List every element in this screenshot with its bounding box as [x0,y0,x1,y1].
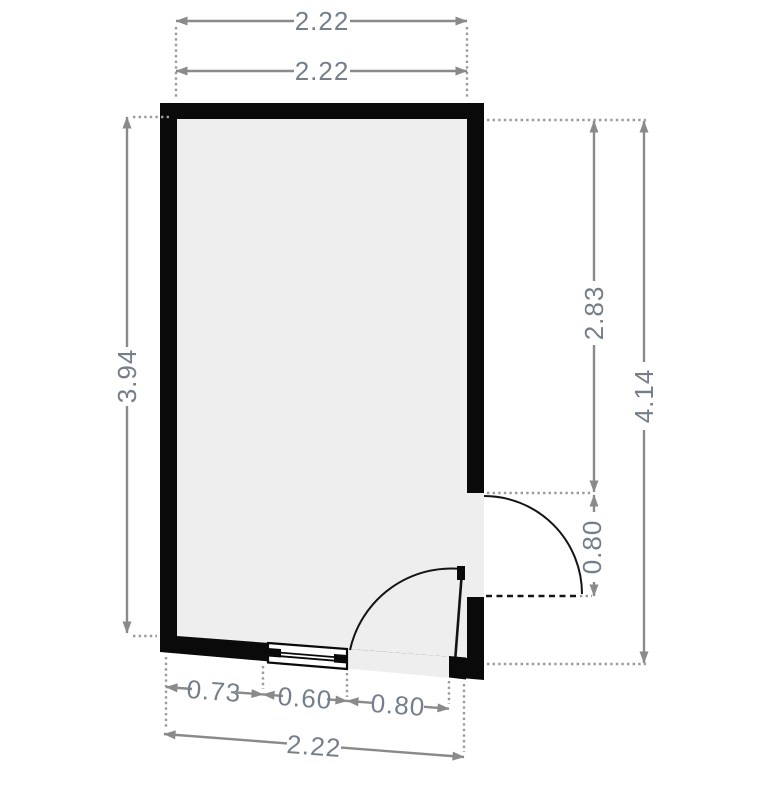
room [160,103,484,680]
dim-bottom-seg-label: 0.73 [186,674,243,708]
dim-top-outer-label: 2.22 [295,6,350,36]
bottom-door-leaf-tip-block [457,566,465,580]
dim-left-label: 3.94 [112,349,142,404]
room-floor[interactable] [177,119,467,658]
window-end-block-right [334,654,347,664]
dim-right-upper-label: 2.83 [579,286,609,341]
right-door-swing-arc [484,496,582,594]
dim-right-total-label: 4.14 [629,369,659,424]
dim-bottom-door-label: 0.80 [370,688,427,722]
dim-bottom-window-label: 0.60 [277,681,334,715]
right-door[interactable] [484,496,582,596]
dim-bottom-total-line-left [164,734,287,743]
dim-bottom-total-line-right [341,748,464,757]
dim-right-door-label: 0.80 [577,520,607,575]
window-end-block-left [268,648,281,658]
dim-bottom-total-label: 2.22 [286,729,343,763]
dim-bottom-door-line-right [424,707,449,709]
floor-plan-canvas: 2.22 2.22 3.94 2.83 0.80 4.14 0.73 0.60 … [0,0,777,796]
right-door-opening [466,493,484,597]
bottom-door-hinge-block [449,656,466,680]
dim-bottom-door-line-left [347,701,372,703]
dim-top-inner-label: 2.22 [295,56,350,86]
